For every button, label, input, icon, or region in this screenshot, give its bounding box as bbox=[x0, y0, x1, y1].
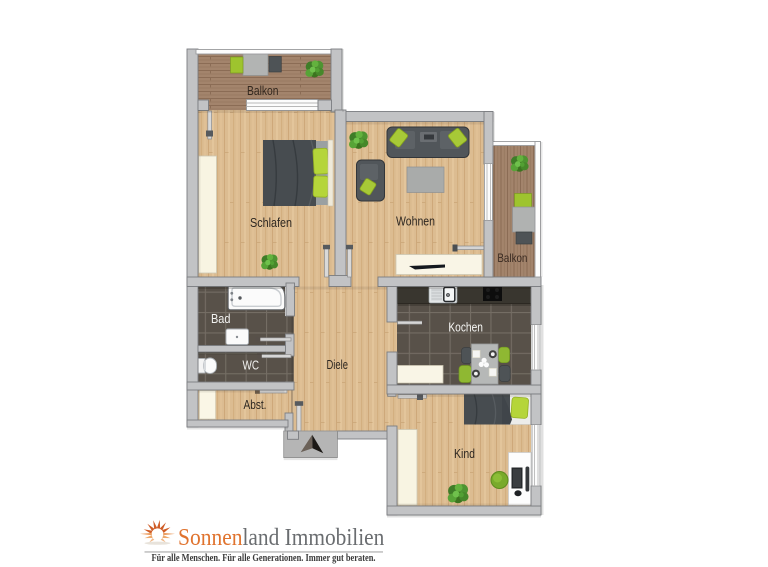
svg-text:land Immobilien: land Immobilien bbox=[243, 524, 385, 551]
svg-text:Für alle Menschen. Für alle Ge: Für alle Menschen. Für alle Generationen… bbox=[152, 553, 376, 564]
svg-text:Kochen: Kochen bbox=[448, 320, 483, 335]
svg-text:WC: WC bbox=[243, 357, 260, 372]
svg-text:Bad: Bad bbox=[211, 311, 231, 326]
svg-text:Abst.: Abst. bbox=[244, 398, 267, 412]
svg-text:Balkon: Balkon bbox=[497, 251, 527, 265]
svg-text:Diele: Diele bbox=[327, 357, 349, 372]
svg-text:Wohnen: Wohnen bbox=[396, 214, 435, 229]
svg-text:Schlafen: Schlafen bbox=[250, 215, 292, 230]
svg-text:Balkon: Balkon bbox=[247, 84, 279, 98]
svg-text:Kind: Kind bbox=[454, 446, 475, 461]
svg-text:Sonnen: Sonnen bbox=[178, 524, 243, 551]
